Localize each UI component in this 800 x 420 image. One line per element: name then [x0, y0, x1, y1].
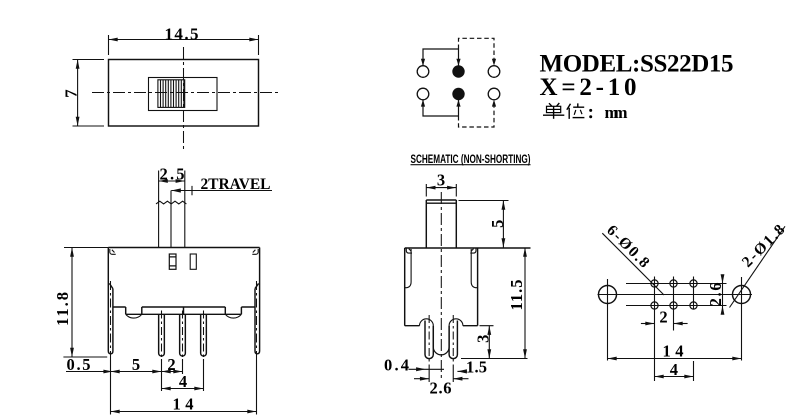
svg-text:X=2-10: X=2-10 [540, 74, 637, 101]
svg-text:0.5: 0.5 [67, 355, 91, 374]
svg-text:5: 5 [488, 220, 507, 228]
svg-text:1.5: 1.5 [466, 357, 487, 376]
svg-text:2: 2 [167, 355, 175, 374]
svg-text:4: 4 [670, 360, 678, 379]
svg-text:SCHEMATIC (NON-SHORTING): SCHEMATIC (NON-SHORTING) [411, 152, 531, 166]
svg-text:3: 3 [437, 171, 445, 190]
svg-text:14: 14 [663, 342, 684, 361]
svg-text:2-Ø1.8: 2-Ø1.8 [739, 221, 789, 271]
svg-text:6-Ø0.8: 6-Ø0.8 [603, 222, 653, 272]
svg-text:2TRAVEL: 2TRAVEL [201, 176, 271, 193]
svg-text:mm: mm [605, 103, 628, 122]
svg-text:4: 4 [179, 372, 187, 391]
svg-text:5: 5 [132, 355, 140, 374]
svg-text:7: 7 [62, 89, 81, 98]
svg-text:0.4: 0.4 [384, 356, 409, 375]
svg-text:11.5: 11.5 [507, 280, 526, 311]
svg-text:3: 3 [473, 335, 492, 343]
svg-text:2.6: 2.6 [706, 282, 725, 306]
svg-text:14: 14 [173, 395, 194, 414]
svg-text:14.5: 14.5 [165, 25, 199, 44]
svg-text:11.8: 11.8 [53, 292, 72, 326]
svg-text:2.5: 2.5 [160, 164, 185, 183]
svg-text:2: 2 [659, 308, 667, 327]
svg-text:2.6: 2.6 [430, 379, 452, 398]
